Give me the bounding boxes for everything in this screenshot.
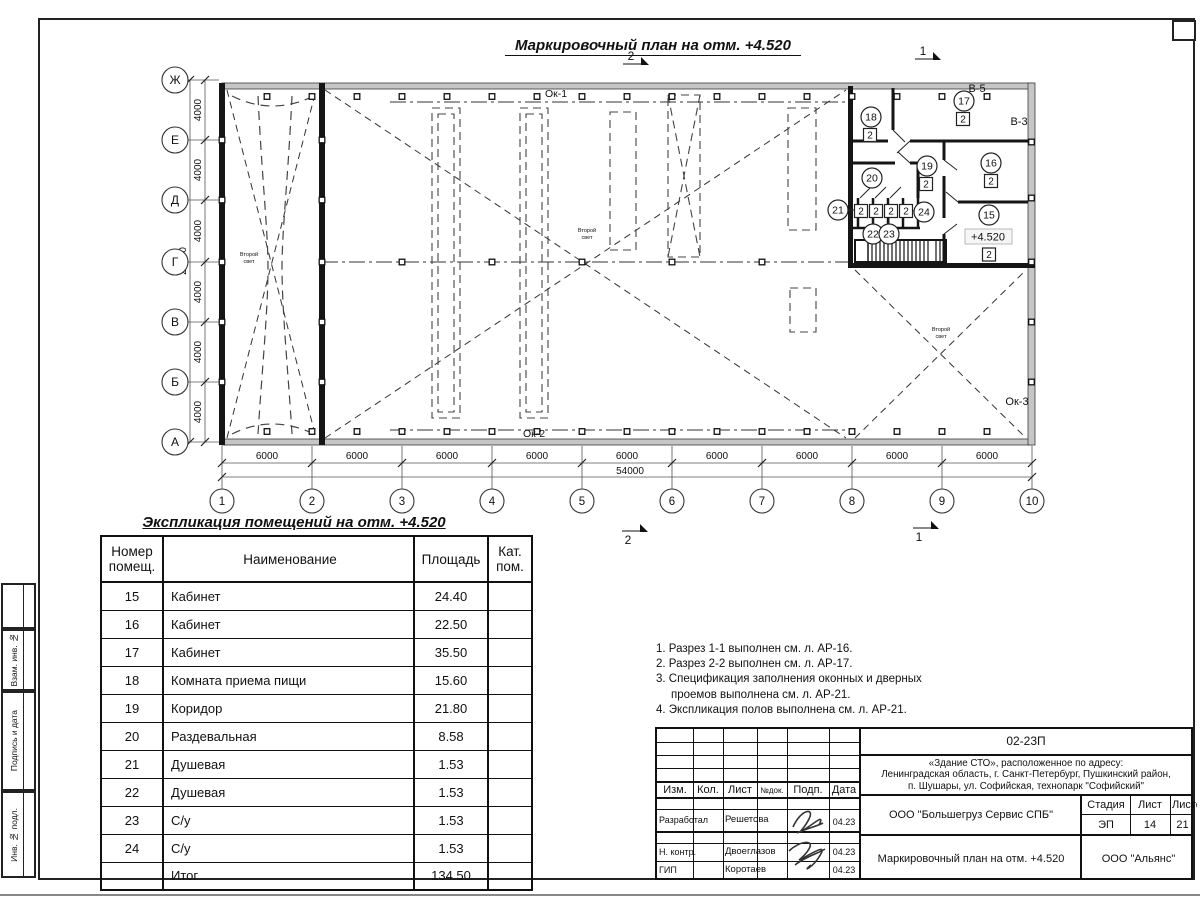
object-address: «Здание СТО», расположенное по адресу: Л… xyxy=(863,758,1189,792)
side-stamp-inv: Инв. № подл. xyxy=(1,791,36,878)
date-developer: 04.23 xyxy=(829,817,859,827)
table-cell xyxy=(488,610,532,638)
stage-label: Стадия xyxy=(1082,799,1130,812)
note-item: 2. Разрез 2-2 выполнен см. л. АР-17. xyxy=(656,657,938,672)
drawing-title: Маркировочный план на отм. +4.520 xyxy=(863,853,1079,866)
table-row: 18Комната приема пищи15.60 xyxy=(101,666,532,694)
table-cell: 23 xyxy=(101,806,163,834)
table-cell xyxy=(488,750,532,778)
table-cell: Комната приема пищи xyxy=(163,666,414,694)
table-cell: 16 xyxy=(101,610,163,638)
table-cell: 15 xyxy=(101,582,163,610)
table-cell xyxy=(488,778,532,806)
table-cell: Душевая xyxy=(163,750,414,778)
table-cell: 35.50 xyxy=(414,638,488,666)
table-cell: С/у xyxy=(163,834,414,862)
side-stamp-label: Подпись и дата xyxy=(9,710,19,771)
sheets-label: Листов xyxy=(1170,799,1197,812)
table-cell: Кабинет xyxy=(163,610,414,638)
table-cell: 18 xyxy=(101,666,163,694)
table-cell: 134.50 xyxy=(414,862,488,890)
corner-stamp-box xyxy=(1172,20,1196,41)
table-cell: 17 xyxy=(101,638,163,666)
table-cell: 21.80 xyxy=(414,694,488,722)
sheet-label: Лист xyxy=(1130,799,1170,812)
name-developer: Решетова xyxy=(725,815,787,826)
stage-value: ЭП xyxy=(1082,819,1130,832)
table-cell: Итог xyxy=(163,862,414,890)
address-line-3: п. Шушары, ул. Софийская, технопарк "Соф… xyxy=(863,781,1189,792)
table-cell xyxy=(488,638,532,666)
table-cell: 8.58 xyxy=(414,722,488,750)
role-developer: Разработал xyxy=(659,815,723,825)
address-line-1: «Здание СТО», расположенное по адресу: xyxy=(863,758,1189,769)
name-ncontrol: Двоеглазов xyxy=(725,847,787,858)
table-row: 23С/у1.53 xyxy=(101,806,532,834)
table-row: 21Душевая1.53 xyxy=(101,750,532,778)
table-cell: 21 xyxy=(101,750,163,778)
col-izm: Изм. xyxy=(657,784,693,797)
table-cell: 22.50 xyxy=(414,610,488,638)
table-cell: 1.53 xyxy=(414,834,488,862)
table-cell xyxy=(488,834,532,862)
table-cell: Кабинет xyxy=(163,638,414,666)
company: ООО "Большегруз Сервис СПБ" xyxy=(863,809,1079,822)
note-item: 4. Экспликация полов выполнена см. л. АР… xyxy=(656,703,938,718)
notes-list: 1. Разрез 1-1 выполнен см. л. АР-16.2. Р… xyxy=(656,642,938,718)
table-cell: 22 xyxy=(101,778,163,806)
table-cell: 24.40 xyxy=(414,582,488,610)
table-cell xyxy=(488,806,532,834)
signature-strokes xyxy=(785,799,831,877)
date-gip: 04.23 xyxy=(829,865,859,875)
role-ncontrol: Н. контр. xyxy=(659,847,723,857)
table-row: 22Душевая1.53 xyxy=(101,778,532,806)
table-row: 19Коридор21.80 xyxy=(101,694,532,722)
table-cell: 20 xyxy=(101,722,163,750)
table-cell: Коридор xyxy=(163,694,414,722)
org-name: ООО "Альянс" xyxy=(1082,853,1195,866)
col-header-number: Номер помещ. xyxy=(101,536,163,582)
plan-title: Маркировочный план на отм. +4.520 xyxy=(505,37,801,56)
table-cell xyxy=(488,862,532,890)
table-cell: 24 xyxy=(101,834,163,862)
table-cell xyxy=(488,582,532,610)
col-ndoc: №док. xyxy=(757,786,787,795)
table-cell: Душевая xyxy=(163,778,414,806)
note-item: 3. Спецификация заполнения оконных и две… xyxy=(656,672,938,702)
table-cell: 1.53 xyxy=(414,806,488,834)
side-stamp-vzam: Взам. инв. № xyxy=(1,629,36,691)
col-list: Лист xyxy=(723,784,757,797)
note-item: 1. Разрез 1-1 выполнен см. л. АР-16. xyxy=(656,642,938,657)
date-ncontrol: 04.23 xyxy=(829,847,859,857)
table-total-row: Итог134.50 xyxy=(101,862,532,890)
table-cell xyxy=(488,722,532,750)
sheet-number: 14 xyxy=(1130,819,1170,832)
table-cell: 19 xyxy=(101,694,163,722)
address-line-2: Ленинградская область, г. Санкт-Петербур… xyxy=(863,769,1189,780)
table-row: 15Кабинет24.40 xyxy=(101,582,532,610)
room-schedule-table: Номер помещ. Наименование Площадь Кат. п… xyxy=(100,535,533,891)
col-header-name: Наименование xyxy=(163,536,414,582)
side-stamp-empty xyxy=(1,583,36,629)
table-cell: С/у xyxy=(163,806,414,834)
sheets-total: 21 xyxy=(1170,819,1195,832)
drawing-sheet: 6000 6000 6000 6000 6000 6000 6000 6000 … xyxy=(0,0,1200,900)
name-gip: Коротаев xyxy=(725,865,787,876)
paper-edge xyxy=(0,894,1200,896)
table-row: 24С/у1.53 xyxy=(101,834,532,862)
table-row: 17Кабинет35.50 xyxy=(101,638,532,666)
table-cell xyxy=(488,666,532,694)
doc-code: 02-23П xyxy=(861,735,1191,749)
side-stamp-podpis: Подпись и дата xyxy=(1,691,36,791)
side-stamp-label: Взам. инв. № xyxy=(9,633,19,687)
title-block: Изм. Кол. Лист №док. Подп. Дата Разработ… xyxy=(655,727,1193,880)
table-cell: 1.53 xyxy=(414,750,488,778)
table-row: 20Раздевальная8.58 xyxy=(101,722,532,750)
col-podp: Подп. xyxy=(787,784,829,797)
col-header-cat: Кат. пом. xyxy=(488,536,532,582)
side-stamp-label: Инв. № подл. xyxy=(9,808,19,862)
table-cell: Кабинет xyxy=(163,582,414,610)
col-kol: Кол. xyxy=(693,784,723,797)
schedule-body: 15Кабинет24.4016Кабинет22.5017Кабинет35.… xyxy=(101,582,532,890)
table-cell xyxy=(101,862,163,890)
role-gip: ГИП xyxy=(659,865,723,875)
table-cell: 1.53 xyxy=(414,778,488,806)
table-cell xyxy=(488,694,532,722)
schedule-title: Экспликация помещений на отм. +4.520 xyxy=(118,514,470,531)
table-cell: 15.60 xyxy=(414,666,488,694)
col-data: Дата xyxy=(829,784,859,797)
col-header-area: Площадь xyxy=(414,536,488,582)
table-cell: Раздевальная xyxy=(163,722,414,750)
table-row: 16Кабинет22.50 xyxy=(101,610,532,638)
